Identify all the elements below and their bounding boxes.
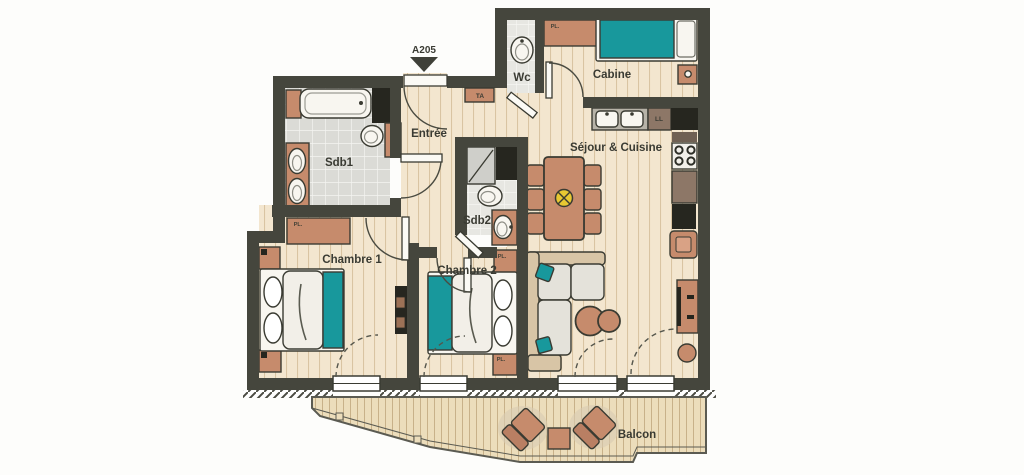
cabine-bed-mattress <box>600 20 674 58</box>
wall-left-lower <box>247 231 259 390</box>
counter-dark <box>672 204 696 229</box>
console-detail <box>687 315 694 319</box>
wall-bottom <box>617 378 627 390</box>
balcony-post <box>414 436 421 443</box>
floorplan-drawing: A205 Entrée Sdb1 Wc Cabine Séjour & Cuis… <box>0 0 1024 475</box>
wall-bottom <box>247 378 333 390</box>
chair-icon <box>527 165 544 186</box>
label-chambre1: Chambre 1 <box>322 254 382 266</box>
counter-dark <box>671 108 698 130</box>
chair-icon <box>527 213 544 234</box>
tv-screen-icon <box>677 287 681 326</box>
dining-set <box>527 157 601 240</box>
label-pl: PL. <box>551 24 560 30</box>
wall-between-bedrooms <box>407 243 419 378</box>
pillow-icon <box>494 316 512 346</box>
cabine-door-leaf <box>546 62 552 98</box>
duvet <box>452 274 492 352</box>
duvet <box>283 271 323 349</box>
label-sdb2: Sdb2 <box>463 215 491 227</box>
armchair-seat <box>676 237 691 252</box>
chambre1-door-leaf <box>402 217 409 260</box>
lamp-icon <box>685 71 691 77</box>
label-chambre2: Chambre 2 <box>437 265 496 277</box>
label-ta: TA <box>476 93 484 100</box>
label-ll: LL <box>655 116 663 123</box>
wall-sdb2-top <box>455 137 517 147</box>
wall-right <box>698 8 710 390</box>
sink-icon <box>289 149 306 174</box>
sdb1-door-leaf <box>401 154 442 162</box>
label-pl: PL. <box>294 222 303 228</box>
label-balcon: Balcon <box>618 429 656 441</box>
entry-arrow-icon <box>410 57 438 72</box>
balcony-table-icon <box>548 428 570 449</box>
faucet-icon <box>605 112 609 116</box>
wall-wc-right <box>535 18 544 93</box>
unit-number-label: A205 <box>412 45 436 56</box>
bed-runner-teal <box>323 272 343 348</box>
toilet-flush <box>520 39 524 43</box>
chair-icon <box>584 213 601 234</box>
counter-brown <box>672 171 697 203</box>
faucet-icon <box>509 225 513 229</box>
label-sdb1: Sdb1 <box>325 157 354 169</box>
sofa-foot <box>528 355 561 371</box>
pillow-icon <box>264 313 282 343</box>
pillow-icon <box>494 280 512 310</box>
side-table-icon <box>678 344 696 362</box>
label-pl: PL. <box>497 357 506 363</box>
pillow-icon <box>264 277 282 307</box>
label-pl: PL. <box>498 254 507 260</box>
wall-top <box>495 8 710 20</box>
wall-bottom <box>467 378 558 390</box>
closet-dark-sdb2 <box>496 142 517 180</box>
chair-icon <box>584 165 601 186</box>
lamp-icon <box>261 249 267 255</box>
counter-strip <box>672 132 697 142</box>
entry-door-leaf <box>404 75 447 86</box>
wall-cabine-bottom <box>583 97 698 108</box>
wall-chambre2-top <box>419 247 437 258</box>
bath-shelf <box>286 90 301 118</box>
entry-marker: A205 <box>410 45 438 72</box>
wall-sdb1-bottom <box>272 205 401 217</box>
faucet-icon <box>630 112 634 116</box>
label-wc: Wc <box>513 72 531 84</box>
label-sejour: Séjour & Cuisine <box>570 142 662 154</box>
floorplan-page: A205 Entrée Sdb1 Wc Cabine Séjour & Cuis… <box>0 0 1024 475</box>
wall-top-left <box>273 76 403 88</box>
sink-icon <box>289 179 306 204</box>
wall-sdb1-right <box>390 88 401 158</box>
label-cabine: Cabine <box>593 69 631 81</box>
balcony <box>243 390 716 462</box>
bathtub-drain <box>359 101 363 105</box>
label-entree: Entrée <box>411 128 447 140</box>
chair-icon <box>527 189 544 210</box>
wall-sejour-divider <box>517 137 528 378</box>
tv-bracket <box>396 297 405 308</box>
coffee-table-icon <box>598 310 620 332</box>
sofa-cushion <box>571 264 604 300</box>
tv-bracket <box>396 317 405 328</box>
wall-bottom <box>674 378 710 390</box>
wall-bottom <box>380 378 420 390</box>
nightstand-pl <box>493 352 517 375</box>
balcony-post <box>336 413 343 420</box>
chair-icon <box>584 189 601 210</box>
lamp-icon <box>261 352 267 358</box>
console-detail <box>687 295 694 299</box>
wc-fixtures <box>511 37 533 63</box>
throw-pillow-icon <box>535 336 552 353</box>
